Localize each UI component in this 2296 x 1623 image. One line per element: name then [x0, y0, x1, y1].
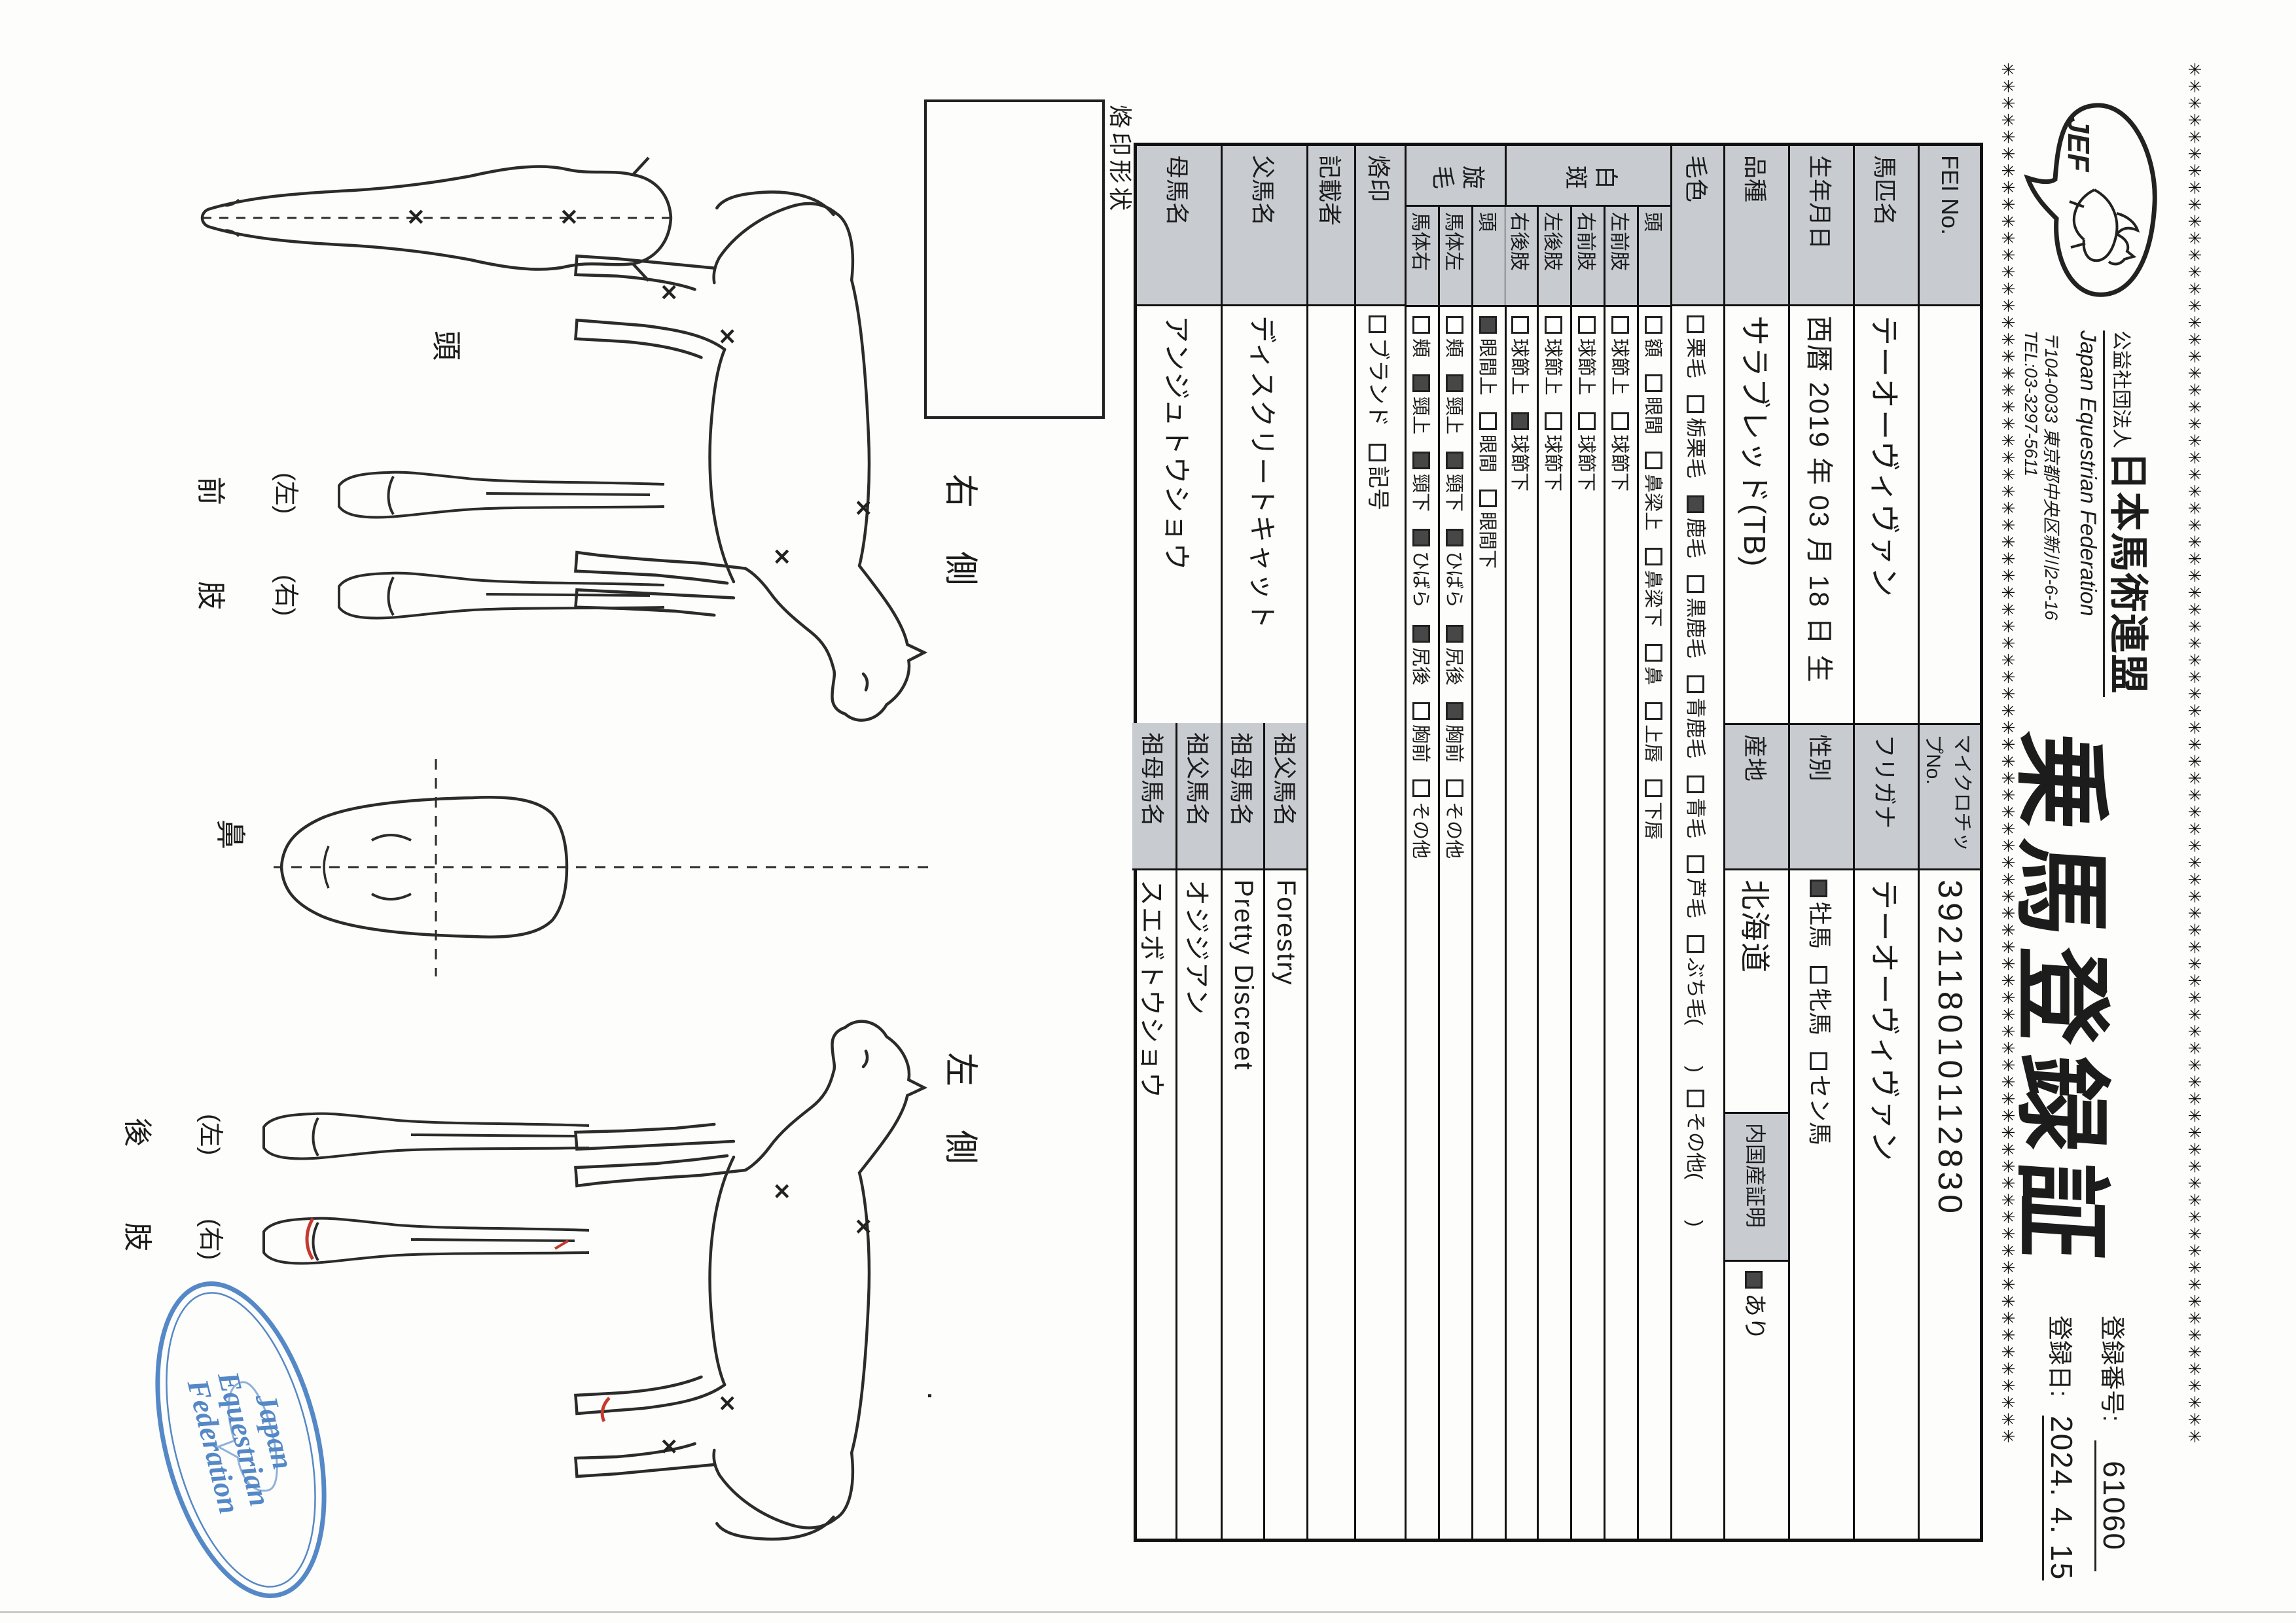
- nose-view-label: 鼻: [211, 819, 254, 849]
- svg-text:✕: ✕: [403, 207, 427, 226]
- front-legs-diagram: [339, 473, 664, 618]
- scanned-page: ✳✳✳✳✳✳✳✳✳✳✳✳✳✳✳✳✳✳✳✳✳✳✳✳✳✳✳✳✳✳✳✳✳✳✳✳✳✳✳✳…: [0, 0, 2296, 1623]
- svg-text:✕: ✕: [656, 283, 680, 302]
- front-leg-label-a: 前: [192, 476, 234, 505]
- scanner-edge-artifact: [0, 1611, 2296, 1613]
- hind-leg-label-b: 肢: [119, 1222, 161, 1251]
- front-leg-label-b: 肢: [192, 581, 234, 610]
- svg-text:✕: ✕: [768, 1182, 793, 1201]
- svg-text:✕: ✕: [769, 547, 793, 566]
- red-marking-hind-hoof: [307, 1219, 313, 1259]
- hind-leg-label-a: 後: [119, 1118, 161, 1147]
- svg-text:.: .: [923, 1393, 948, 1399]
- svg-text:✕: ✕: [656, 1437, 681, 1456]
- nose-front-view: [274, 759, 928, 976]
- horse-diagrams: ✕✕ ✕✕ ✕✕ .✕✕ ✕✕: [0, 0, 2296, 1623]
- registration-certificate: ✳✳✳✳✳✳✳✳✳✳✳✳✳✳✳✳✳✳✳✳✳✳✳✳✳✳✳✳✳✳✳✳✳✳✳✳✳✳✳✳…: [0, 0, 2296, 1623]
- front-right-paren: (右): [270, 575, 306, 616]
- horse-left-side-view: ✕✕ .✕✕: [575, 1022, 947, 1539]
- hind-legs-diagram: [264, 1114, 589, 1264]
- hind-left-paren: (左): [195, 1114, 231, 1155]
- svg-text:✕: ✕: [850, 1217, 875, 1236]
- head-top-view: ✕✕: [202, 158, 671, 281]
- svg-text:✕: ✕: [556, 207, 581, 226]
- jef-stamp: Japan Equestrian Federation: [143, 1263, 339, 1616]
- hind-right-paren: (右): [195, 1219, 231, 1260]
- horse-right-side-view: ✕✕ ✕✕: [575, 192, 924, 720]
- svg-text:✕: ✕: [714, 327, 738, 346]
- head-view-label: 頭: [427, 330, 470, 361]
- front-left-paren: (左): [270, 473, 306, 514]
- svg-text:✕: ✕: [714, 1394, 739, 1413]
- svg-text:✕: ✕: [850, 498, 874, 517]
